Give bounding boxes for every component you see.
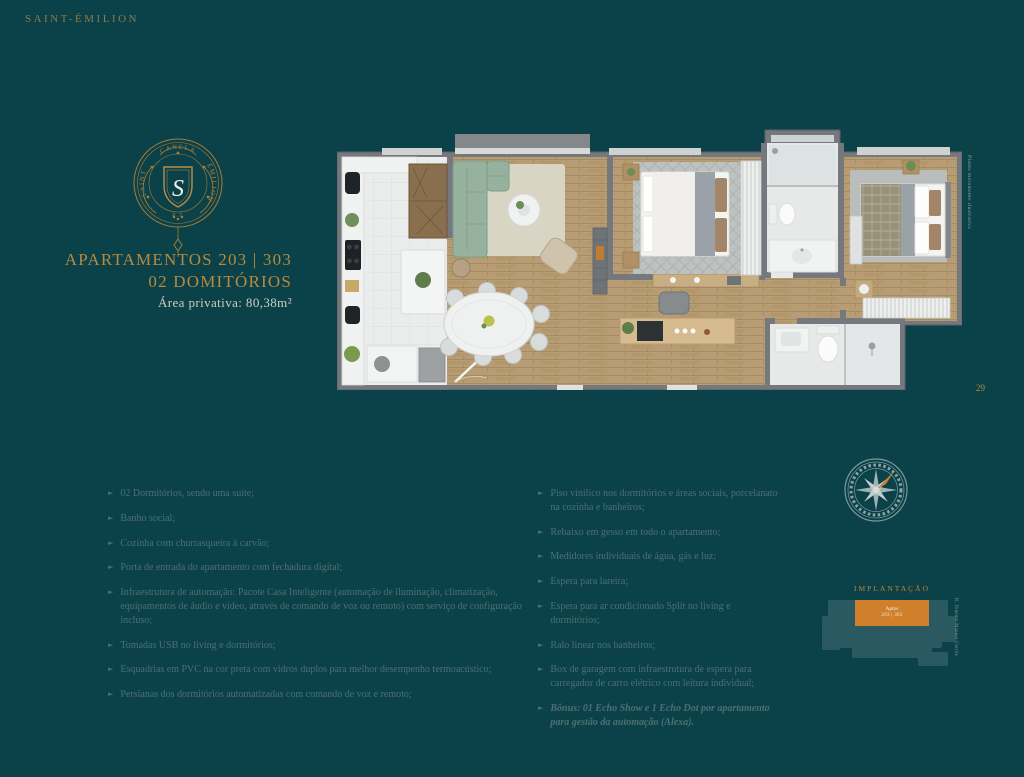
bullet-arrow-icon: ► [538,639,543,653]
unit-label-line1: Aptos [885,606,898,613]
feature-item: ►Piso vinílico nos dormitórios e áreas s… [538,487,780,515]
feature-item: ►Ralo linear nos banheiros; [538,639,780,653]
bullet-arrow-icon: ► [108,487,113,501]
bedroom2-bed [861,182,951,258]
title-private-area: Área privativa: 80,38m² [40,295,292,312]
features-list-right: ►Piso vinílico nos dormitórios e áreas s… [538,487,780,741]
crest-monogram: S [172,176,184,202]
kitchen-window [382,148,442,155]
feature-text: Box de garagem com infraestrutura de esp… [550,663,780,691]
crest-bottom-text: 8.5 [172,213,184,219]
feature-text: Espera para ar condicionado Split no liv… [550,600,780,628]
svg-text:SAINT: SAINT [139,168,148,197]
feature-item: ►Box de garagem com infraestrutura de es… [538,663,780,691]
bullet-arrow-icon: ► [538,663,543,691]
coffee-table [508,194,540,226]
unit-label-line2: 203 | 303 [881,613,902,619]
floor-plan [337,128,962,390]
title-block: APARTAMENTOS 203 | 303 02 DOMITÓRIOS Áre… [40,249,292,311]
feature-text: Piso vinílico nos dormitórios e áreas so… [550,487,780,515]
suite-nightstand-2 [623,252,639,268]
feature-item: ►Persianas dos dormitórios automatizadas… [108,688,532,702]
feature-item: ►Rebaixo em gesso em todo o apartamento; [538,526,780,540]
suite-wardrobe [741,161,761,275]
feature-text: Esquadrias em PVC na cor preta com vidro… [120,663,491,677]
highlighted-unit: Aptos 203 | 303 [855,600,929,626]
street-label: R. Tenente Manoel Corrêa [948,598,958,688]
crest-left-text: SAINT [139,168,148,197]
suite-bed [641,172,729,256]
feature-item: ►Espera para ar condicionado Split no li… [538,600,780,628]
feature-item: ►Cozinha com churrasqueira à carvão; [108,537,532,551]
sideboard [653,274,759,287]
feature-item: ►Banho social; [108,512,532,526]
suite-window [609,148,701,155]
feature-item: ►Tomadas USB no living e dormitórios; [108,639,532,653]
bullet-arrow-icon: ► [538,575,543,589]
feature-text: Bônus: 01 Echo Show e 1 Echo Dot por apa… [550,702,780,730]
bullet-arrow-icon: ► [538,550,543,564]
feature-text: Porta de entrada do apartamento com fech… [120,561,342,575]
feature-text: Cozinha com churrasqueira à carvão; [120,537,269,551]
feature-text: Medidores individuais de água, gás e luz… [550,550,716,564]
feature-item: ►02 Dormitórios, sendo uma suíte; [108,487,532,501]
feature-text: Espera para lareira; [550,575,628,589]
plan-disclaimer: Planta meramente ilustrativa [962,155,972,275]
bullet-arrow-icon: ► [108,688,113,702]
crest-logo: S CANELA SAINT ÉMILION 8.5 [126,127,230,263]
feature-item: ►Espera para lareira; [538,575,780,589]
feature-text: Rebaixo em gesso em todo o apartamento; [550,526,720,540]
bedroom2-wardrobe [863,298,950,318]
page-number: 29 [976,383,985,393]
bullet-arrow-icon: ► [108,586,113,627]
bullet-arrow-icon: ► [108,639,113,653]
svg-text:8.5: 8.5 [172,213,184,219]
features-list-left: ►02 Dormitórios, sendo uma suíte;►Banho … [108,487,532,713]
bullet-arrow-icon: ► [538,600,543,628]
bullet-arrow-icon: ► [538,526,543,540]
bullet-arrow-icon: ► [538,487,543,515]
brand-name: SAINT-ÉMILION [25,13,139,25]
bullet-arrow-icon: ► [108,537,113,551]
bullet-arrow-icon: ► [108,512,113,526]
bedroom2-window [857,147,950,155]
title-bedrooms: 02 DOMITÓRIOS [40,271,292,293]
feature-text: 02 Dormitórios, sendo uma suíte; [120,487,254,501]
bedroom2-nightstand [855,280,873,298]
feature-item: ►Esquadrias em PVC na cor preta com vidr… [108,663,532,677]
feature-item: ►Porta de entrada do apartamento com fec… [108,561,532,575]
feature-text: Ralo linear nos banheiros; [550,639,655,653]
feature-item: ►Bônus: 01 Echo Show e 1 Echo Dot por ap… [538,702,780,730]
feature-text: Infraestrutura de automação: Pacote Casa… [120,586,532,627]
title-apartments: APARTAMENTOS 203 | 303 [40,249,292,271]
bathroom-window [771,135,834,142]
feature-item: ►Infraestrutura de automação: Pacote Cas… [108,586,532,627]
compass-icon [843,457,909,523]
bullet-arrow-icon: ► [108,663,113,677]
bullet-arrow-icon: ► [108,561,113,575]
feature-item: ►Medidores individuais de água, gás e lu… [538,550,780,564]
bedroom2-dresser [850,216,862,264]
feature-text: Banho social; [120,512,175,526]
fireplace-unit [593,228,607,294]
feature-text: Tomadas USB no living e dormitórios; [120,639,275,653]
brochure-page: SAINT-ÉMILION S CANELA [0,0,1024,777]
feature-text: Persianas dos dormitórios automatizadas … [120,688,411,702]
implantacao-label: IMPLANTAÇÃO [822,584,962,593]
bullet-arrow-icon: ► [538,702,543,730]
side-table [452,259,470,277]
